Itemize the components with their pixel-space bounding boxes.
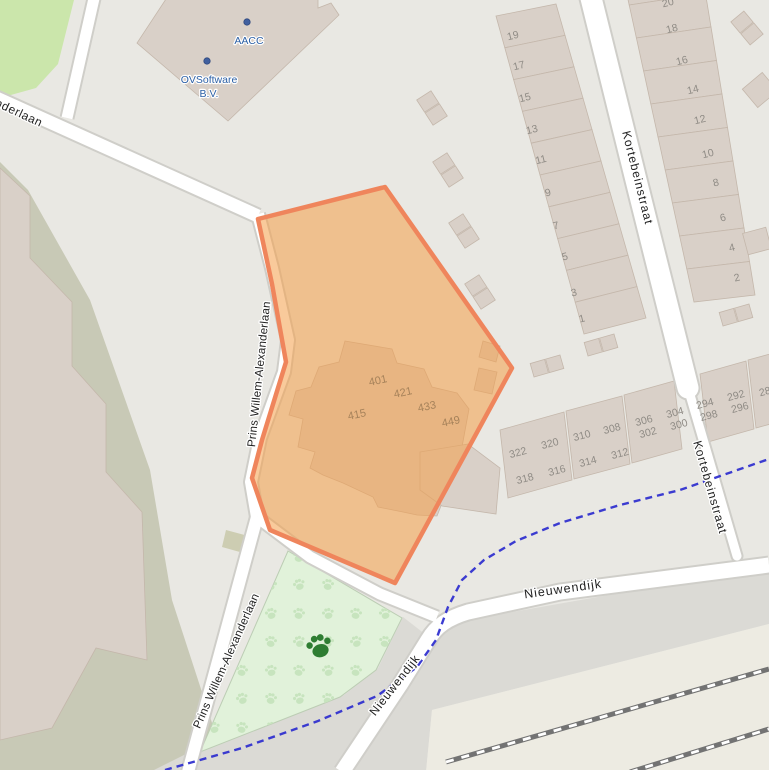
poi-label: OVSoftware <box>181 74 238 86</box>
map-canvas[interactable]: nderlaanPrins Willem-AlexanderlaanPrins … <box>0 0 769 770</box>
terraced-house <box>687 262 755 303</box>
poi-marker-dot <box>244 19 250 25</box>
map-viewport[interactable]: nderlaanPrins Willem-AlexanderlaanPrins … <box>0 0 769 770</box>
poi-label-line2: B.V. <box>200 88 219 100</box>
house-number: 28 <box>758 385 769 400</box>
poi-label: AACC <box>234 35 264 47</box>
poi-marker-dot <box>204 58 210 64</box>
